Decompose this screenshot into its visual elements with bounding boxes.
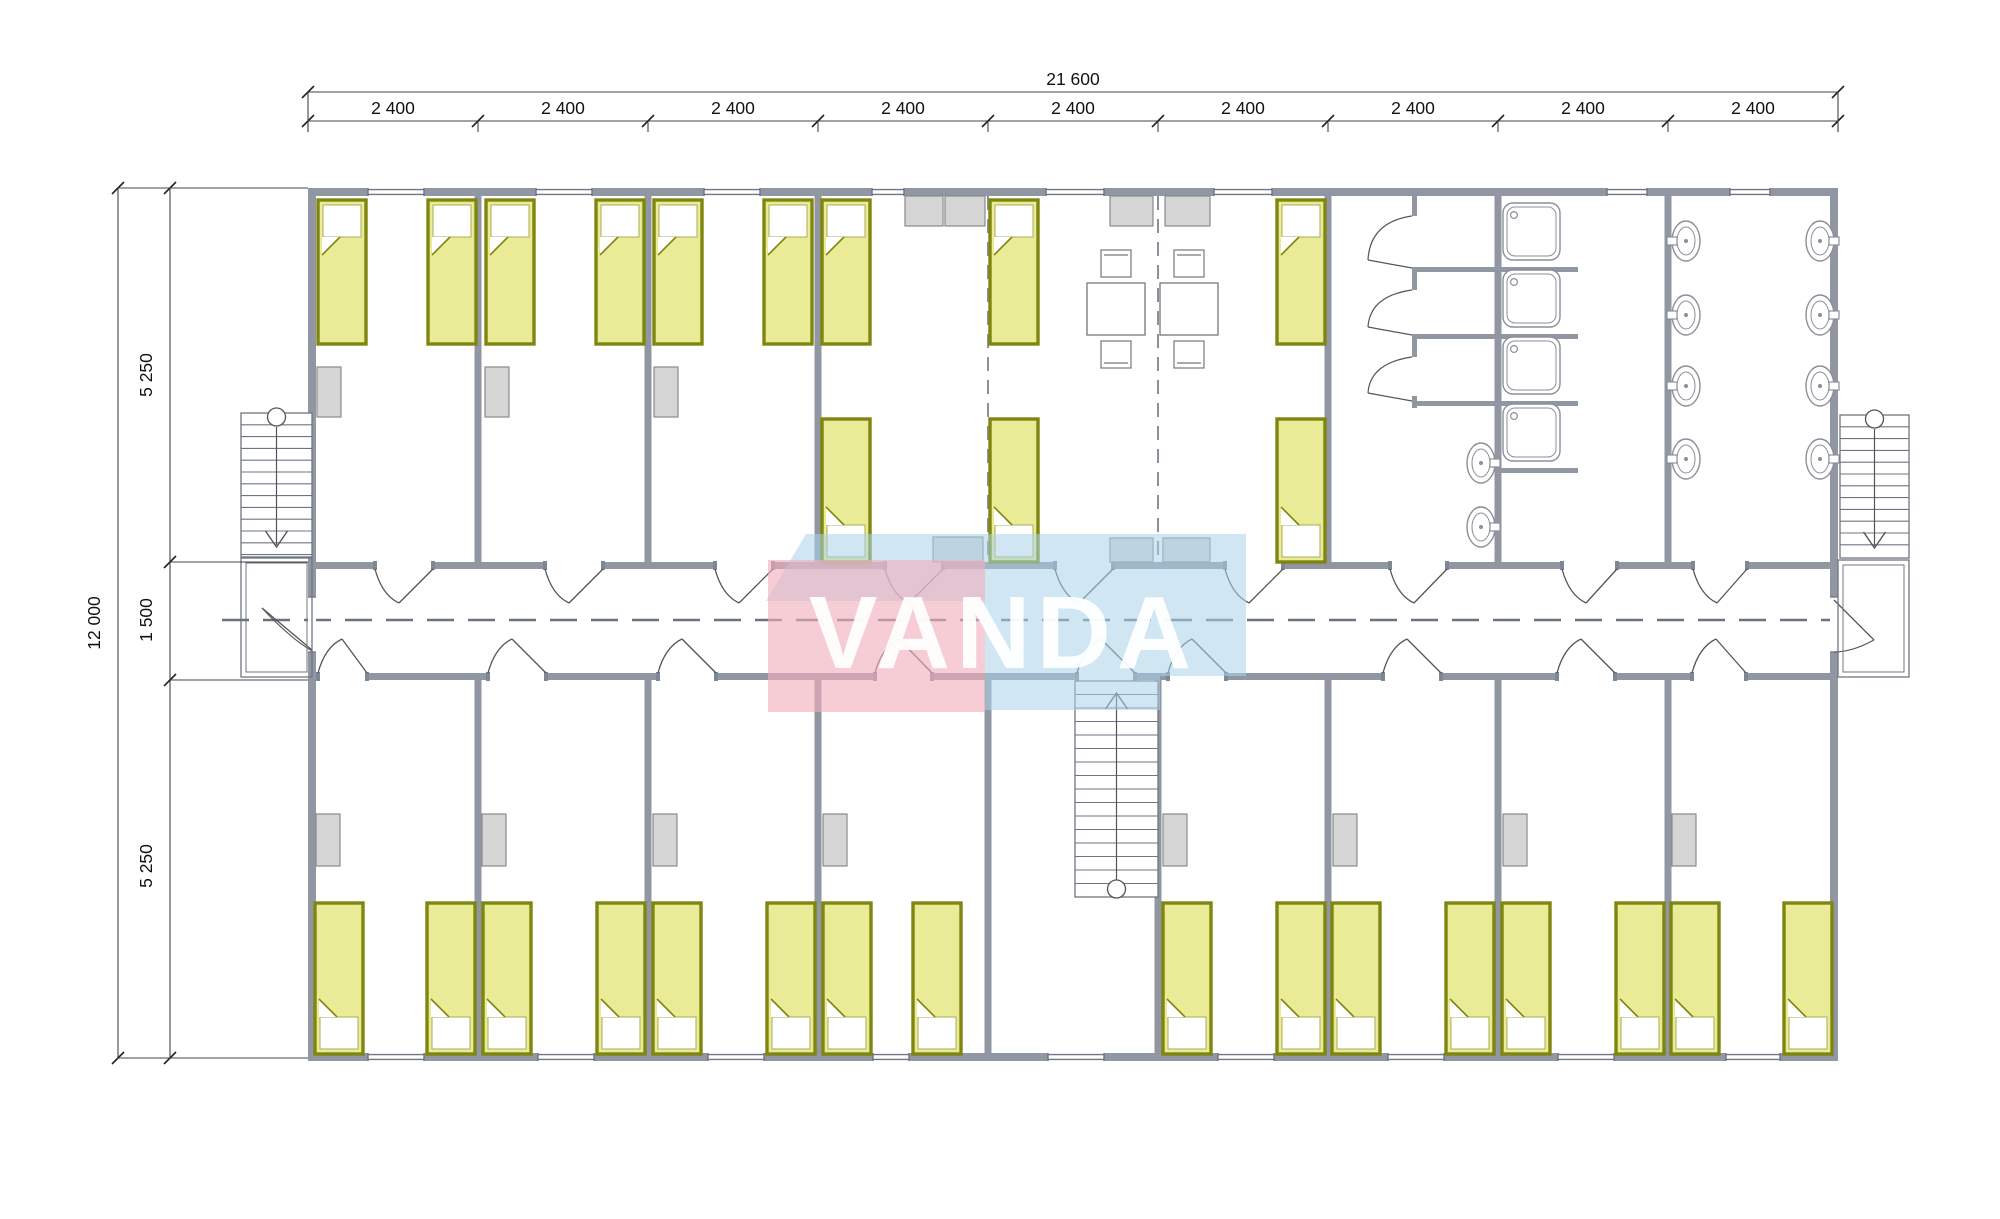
door-opening — [1692, 673, 1746, 680]
wardrobe — [654, 367, 678, 417]
stair-start-circle — [268, 408, 286, 426]
shower-tray-outer — [1503, 270, 1560, 327]
door-jamb-cap — [1388, 561, 1392, 570]
bed-pillow — [827, 205, 865, 237]
dimension-label-chain: 1 500 — [136, 598, 156, 642]
dimension-label-module: 2 400 — [1391, 98, 1435, 118]
wardrobe — [316, 814, 340, 866]
door-swing-arc — [375, 569, 399, 603]
door-opening — [375, 562, 433, 569]
door-opening — [1383, 673, 1441, 680]
bed — [764, 200, 812, 344]
door-jamb-cap — [601, 561, 605, 570]
door-jamb-cap — [714, 672, 718, 681]
dimension-label-chain: 5 250 — [136, 353, 156, 397]
bed-pillow — [1621, 1017, 1659, 1049]
washbasin — [1667, 221, 1700, 261]
door-leaf — [1407, 639, 1441, 673]
floor-plan-drawing: VANDA 21 6002 4002 4002 4002 4002 4002 4… — [0, 0, 2000, 1219]
bed-pillow — [995, 205, 1033, 237]
bed-pillow — [601, 205, 639, 237]
door-leaf — [399, 569, 433, 603]
stall-front-wall — [1412, 337, 1417, 357]
basin-drain — [1818, 313, 1822, 317]
bed-pillow — [1282, 205, 1320, 237]
door-jamb-cap — [316, 672, 320, 681]
bed — [596, 200, 644, 344]
chair — [1101, 250, 1131, 277]
dimension-label-module: 2 400 — [371, 98, 415, 118]
bed-pillow — [1168, 1017, 1206, 1049]
bed-pillow — [491, 205, 529, 237]
door-swing-arc — [488, 639, 512, 673]
washbasin — [1667, 295, 1700, 335]
sanitary-fixtures — [1368, 203, 1839, 547]
entrance-door-arc — [1834, 640, 1874, 652]
bed — [990, 200, 1038, 344]
bed-pillow — [488, 1017, 526, 1049]
dimension-label-module: 2 400 — [711, 98, 755, 118]
wardrobe — [1672, 814, 1696, 866]
entrance-door-leaf — [262, 608, 312, 650]
chair-seat — [1174, 341, 1204, 368]
bed-pillow — [1282, 525, 1320, 557]
door-swing-arc — [1692, 639, 1716, 673]
dining-table — [1087, 283, 1145, 335]
shower-tray — [1503, 404, 1560, 461]
bed-pillow — [1282, 1017, 1320, 1049]
watermark-text: VANDA — [809, 575, 1198, 690]
bed — [913, 903, 961, 1054]
chair-seat — [1101, 341, 1131, 368]
door-jamb-cap — [656, 672, 660, 681]
basin-tap — [1667, 455, 1677, 463]
basin-tap — [1829, 237, 1839, 245]
basin-drain — [1818, 384, 1822, 388]
wardrobe — [317, 367, 341, 417]
bed — [486, 200, 534, 344]
stall-front-wall — [1412, 196, 1417, 216]
basin-drain — [1684, 239, 1688, 243]
door-swing-arc — [1383, 639, 1407, 673]
stall-door-arc — [1368, 290, 1412, 327]
stall-door-leaf — [1368, 260, 1412, 268]
wardrobe — [485, 367, 509, 417]
dining-table — [1160, 283, 1218, 335]
bed-pillow — [769, 205, 807, 237]
door-opening — [715, 562, 773, 569]
door-jamb-cap — [1744, 672, 1748, 681]
wardrobe — [823, 814, 847, 866]
balcony-inner-line — [246, 563, 307, 672]
door-opening — [318, 673, 367, 680]
vanda-watermark: VANDA — [766, 534, 1246, 712]
door-jamb-cap — [544, 672, 548, 681]
door-leaf — [1716, 639, 1746, 673]
partition-wall-top-band — [1495, 196, 1502, 562]
door-leaf — [1586, 569, 1617, 603]
basin-tap — [1829, 455, 1839, 463]
bed-pillow — [1676, 1017, 1714, 1049]
bed — [1277, 419, 1325, 562]
door-jamb-cap — [1691, 561, 1695, 570]
floor-plan-page: VANDA 21 6002 4002 4002 4002 4002 4002 4… — [0, 0, 2000, 1219]
bed — [315, 903, 363, 1054]
door-jamb-cap — [1690, 672, 1694, 681]
bed-pillow — [323, 205, 361, 237]
bed-pillow — [602, 1017, 640, 1049]
door-jamb-cap — [1445, 561, 1449, 570]
door-leaf — [1249, 569, 1283, 603]
door-opening — [1390, 562, 1447, 569]
shower-tray — [1503, 337, 1560, 394]
basin-tap — [1667, 237, 1677, 245]
stall-partition — [1412, 401, 1495, 406]
door-jamb-cap — [365, 672, 369, 681]
door-jamb-cap — [1613, 672, 1617, 681]
basin-tap — [1490, 459, 1500, 467]
bed — [767, 903, 815, 1054]
bed — [654, 200, 702, 344]
bed — [597, 903, 645, 1054]
wardrobe — [482, 814, 506, 866]
balcony-outline — [241, 558, 312, 677]
bed — [1616, 903, 1664, 1054]
door-swing-arc — [658, 639, 682, 673]
door-opening — [1557, 673, 1615, 680]
bed-pillow — [828, 1017, 866, 1049]
entrance-door-leaf — [1834, 600, 1874, 640]
dimension-label-module: 2 400 — [1731, 98, 1775, 118]
basin-drain — [1479, 461, 1483, 465]
chair — [1101, 341, 1131, 368]
balcony — [1838, 560, 1909, 677]
cabinet — [1165, 196, 1210, 226]
chair — [1174, 250, 1204, 277]
bed — [1277, 200, 1325, 344]
door-swing-arc — [318, 639, 342, 673]
stair-start-circle — [1108, 880, 1126, 898]
shower-partition — [1498, 468, 1578, 473]
door-leaf — [1581, 639, 1615, 673]
dimension-label-module: 2 400 — [541, 98, 585, 118]
staircase — [241, 408, 312, 557]
bed — [318, 200, 366, 344]
cabinet — [1110, 196, 1153, 226]
bed-pillow — [658, 1017, 696, 1049]
bed — [822, 200, 870, 344]
cabinet — [905, 196, 943, 226]
door-jamb-cap — [1555, 672, 1559, 681]
door-swing-arc — [1557, 639, 1581, 673]
basin-tap — [1829, 382, 1839, 390]
bed — [1784, 903, 1832, 1054]
bed-pillow — [432, 1017, 470, 1049]
dimension-label-total-width: 21 600 — [1046, 69, 1100, 89]
bed-pillow — [1337, 1017, 1375, 1049]
door-jamb-cap — [1745, 561, 1749, 570]
staircase — [1840, 410, 1909, 558]
door-jamb-cap — [1381, 672, 1385, 681]
cabinet — [945, 196, 985, 226]
door-jamb-cap — [543, 561, 547, 570]
washbasin — [1667, 366, 1700, 406]
door-leaf — [569, 569, 603, 603]
basin-drain — [1818, 457, 1822, 461]
stall-partition — [1412, 334, 1495, 339]
shower-tray-outer — [1503, 203, 1560, 260]
shower-tray-outer — [1503, 337, 1560, 394]
dimension-label-chain: 5 250 — [136, 844, 156, 888]
chair — [1174, 341, 1204, 368]
basin-drain — [1818, 239, 1822, 243]
dimension-label-module: 2 400 — [1051, 98, 1095, 118]
bed — [1277, 903, 1325, 1054]
bed — [427, 903, 475, 1054]
shower-tray — [1503, 270, 1560, 327]
door-opening — [658, 673, 716, 680]
bed — [1332, 903, 1380, 1054]
bed — [1502, 903, 1550, 1054]
door-jamb-cap — [373, 561, 377, 570]
bed-pillow — [320, 1017, 358, 1049]
door-swing-arc — [1693, 569, 1717, 603]
bed-pillow — [433, 205, 471, 237]
door-jamb-cap — [1615, 561, 1619, 570]
dimension-label-module: 2 400 — [881, 98, 925, 118]
basin-tap — [1490, 523, 1500, 531]
bed — [823, 903, 871, 1054]
stall-door-leaf — [1368, 327, 1412, 335]
dimension-label-total-depth: 12 000 — [84, 596, 104, 650]
door-jamb-cap — [1560, 561, 1564, 570]
door-swing-arc — [1390, 569, 1414, 603]
basin-drain — [1684, 313, 1688, 317]
wardrobe — [1163, 814, 1187, 866]
bed-pillow — [659, 205, 697, 237]
stall-door-arc — [1368, 357, 1412, 393]
basin-tap — [1667, 382, 1677, 390]
door-jamb-cap — [1439, 672, 1443, 681]
bed-pillow — [772, 1017, 810, 1049]
dimension-label-module: 2 400 — [1221, 98, 1265, 118]
door-jamb-cap — [713, 561, 717, 570]
partition-wall-top-band — [1665, 196, 1672, 562]
partition-wall-bottom-band — [985, 680, 992, 1053]
dimension-label-module: 2 400 — [1561, 98, 1605, 118]
bed — [483, 903, 531, 1054]
door-opening — [1693, 562, 1747, 569]
shower-tray — [1503, 203, 1560, 260]
stall-door-arc — [1368, 216, 1412, 260]
door-opening — [488, 673, 546, 680]
stair-start-circle — [1866, 410, 1884, 428]
bed-pillow — [918, 1017, 956, 1049]
chair-seat — [1101, 250, 1131, 277]
washbasin — [1667, 439, 1700, 479]
entrance-opening — [1830, 597, 1838, 652]
wardrobe — [1503, 814, 1527, 866]
bed — [1446, 903, 1494, 1054]
stall-door-leaf — [1368, 393, 1412, 401]
bed-pillow — [1507, 1017, 1545, 1049]
shower-tray-outer — [1503, 404, 1560, 461]
door-jamb-cap — [486, 672, 490, 681]
basin-drain — [1684, 384, 1688, 388]
bed — [1163, 903, 1211, 1054]
door-leaf — [1717, 569, 1747, 603]
bed — [653, 903, 701, 1054]
door-leaf — [512, 639, 546, 673]
bed-pillow — [1451, 1017, 1489, 1049]
stall-partition — [1412, 267, 1495, 272]
staircase — [1075, 681, 1158, 898]
stall-front-wall — [1412, 270, 1417, 290]
basin-drain — [1479, 525, 1483, 529]
door-swing-arc — [715, 569, 739, 603]
door-jamb-cap — [431, 561, 435, 570]
door-leaf — [342, 639, 367, 673]
wardrobe — [653, 814, 677, 866]
wardrobe — [1333, 814, 1357, 866]
balcony-outline — [1838, 560, 1909, 677]
bed-pillow — [1789, 1017, 1827, 1049]
basin-tap — [1829, 311, 1839, 319]
door-opening — [1562, 562, 1617, 569]
door-swing-arc — [545, 569, 569, 603]
door-swing-arc — [1562, 569, 1586, 603]
door-opening — [545, 562, 603, 569]
balcony — [241, 558, 312, 677]
bed — [1671, 903, 1719, 1054]
door-leaf — [682, 639, 716, 673]
chair-seat — [1174, 250, 1204, 277]
basin-tap — [1667, 311, 1677, 319]
door-leaf — [1414, 569, 1447, 603]
basin-drain — [1684, 457, 1688, 461]
bed — [428, 200, 476, 344]
